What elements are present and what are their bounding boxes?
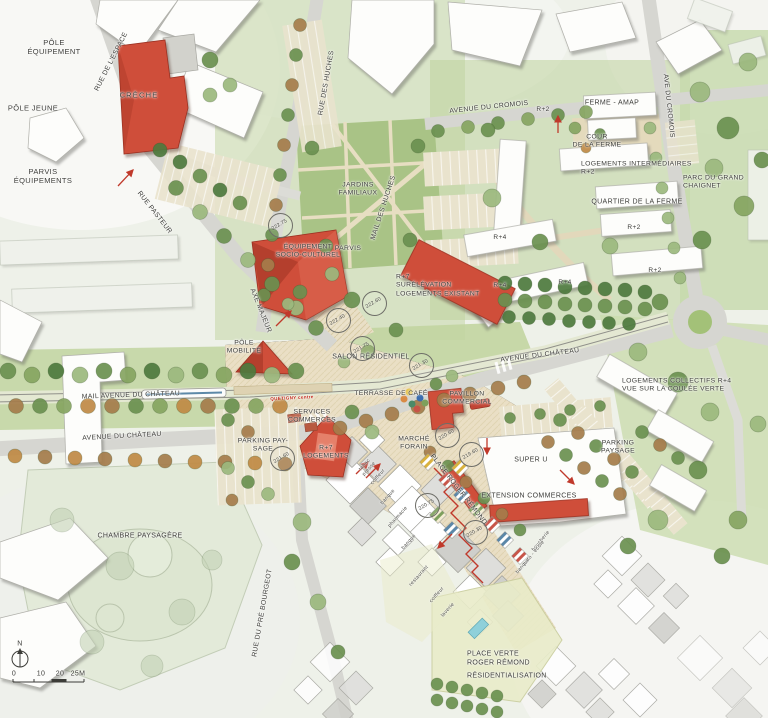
label-ferme-amap: FERME - AMAP bbox=[585, 100, 639, 109]
compass-north: N bbox=[17, 641, 22, 650]
label-tram-stop: QUETIGNY centre bbox=[270, 394, 314, 402]
street-mail-avenue-du-chateau: MAIL AVENUE DU CHÂTEAU bbox=[82, 390, 181, 402]
street-ave-du-cromois: AVE DU CROMOIS bbox=[661, 74, 676, 139]
label-pole-jeune: PÔLE JEUNE bbox=[8, 103, 58, 112]
label-parking-paysage-e: PARKING PAYSAGE bbox=[601, 440, 635, 457]
street-avenue-du-cromois: AVENUE DU CROMOIS bbox=[449, 100, 529, 117]
elevation-marker: 222.75 bbox=[268, 213, 293, 238]
shop-banque-1: banque bbox=[379, 488, 396, 506]
shop-banque-2: banque bbox=[400, 533, 417, 551]
label-place-verte: PLACE VERTE ROGER RÉMOND bbox=[467, 650, 530, 667]
elevation-marker: 220.60 bbox=[435, 423, 460, 448]
shop-laverie: laverie bbox=[440, 602, 456, 619]
label-layer: PÔLE ÉQUIPEMENTPÔLE JEUNEPARVIS ÉQUIPEME… bbox=[0, 0, 768, 718]
elevation-marker: 220.30 bbox=[463, 520, 488, 545]
label-extension-commerces: EXTENSION COMMERCES bbox=[481, 493, 576, 502]
label-services-commerces: SERVICES COMMERCES bbox=[288, 409, 336, 426]
shop-restaurant: restaurant bbox=[408, 564, 430, 587]
label-surelevation: R+7 SURÉLÉVATION LOGEMENTS EXISTANT bbox=[396, 274, 480, 299]
label-parvis: PARVIS bbox=[335, 245, 361, 253]
label-super-u: SUPER U bbox=[514, 457, 548, 466]
scale-tick-0: 0 bbox=[12, 671, 16, 680]
label-jardins-familiaux: JARDINS FAMILIAUX bbox=[339, 182, 378, 199]
shop-tabac-presse: tabac presse bbox=[357, 457, 378, 478]
label-pole-equipement: PÔLE ÉQUIPEMENT bbox=[27, 38, 80, 56]
street-rue-de-l-espace: RUE DE L'ESPACE bbox=[94, 31, 131, 93]
scale-tick-20: 20 bbox=[56, 671, 65, 680]
street-avenue-du-chateau-e: AVENUE DU CHÂTEAU bbox=[500, 347, 580, 365]
elevation-marker: 221.60 bbox=[270, 446, 295, 471]
elevation-marker: 220.75 bbox=[415, 493, 440, 518]
label-r2-a: R+2 bbox=[536, 106, 549, 114]
label-parc-du-grand-chaignet: PARC DU GRAND CHAIGNET bbox=[683, 175, 744, 192]
label-logements-collectifs: LOGEMENTS COLLECTIFS R+4 VUE SUR LA COUL… bbox=[622, 378, 731, 395]
shop-pharmacie: pharmacie bbox=[387, 505, 409, 529]
street-rue-pasteur: RUE PASTEUR bbox=[135, 190, 173, 236]
label-r2-c: R+2 bbox=[648, 267, 661, 275]
label-cour-de-la-ferme: COUR DE LA FERME bbox=[573, 134, 622, 151]
scale-tick-10: 10 bbox=[37, 671, 46, 680]
label-chambre-paysagere: CHAMBRE PAYSAGÈRE bbox=[97, 533, 182, 542]
label-residentialisation: RÉSIDENTIALISATION bbox=[467, 673, 547, 682]
elevation-marker: 222.60 bbox=[362, 291, 387, 316]
label-r4-b: R+4 bbox=[493, 282, 506, 290]
label-parvis-equipements: PARVIS ÉQUIPEMENTS bbox=[14, 167, 72, 185]
label-quartier-de-la-ferme: QUARTIER DE LA FERME bbox=[591, 199, 682, 208]
elevation-marker: 219.60 bbox=[459, 442, 484, 467]
label-marche-forain: MARCHÉ FORAIN bbox=[398, 436, 430, 453]
label-r2-b: R+2 bbox=[627, 224, 640, 232]
label-creche: CRÈCHE bbox=[120, 90, 159, 99]
label-terrasse-de-cafe: TERRASSE DE CAFÉ bbox=[354, 390, 428, 398]
label-equipement-socio-culturel: ÉQUIPEMENT SOCIO-CULTUREL bbox=[276, 244, 340, 261]
street-avenue-du-chateau-w: AVENUE DU CHÂTEAU bbox=[82, 431, 162, 443]
label-logements-intermediaires: LOGEMENTS INTERMÉDIAIRES R+2 bbox=[581, 161, 692, 178]
shop-banque-3: banque bbox=[515, 557, 532, 575]
label-pavillon-commercial: PAVILLON COMMERCIAL bbox=[442, 391, 492, 408]
scale-tick-25m: 25M bbox=[71, 671, 86, 680]
label-r7-logements: R+7 LOGEMENTS bbox=[303, 445, 349, 462]
street-rue-des-huches: RUE DES HUCHES bbox=[317, 50, 337, 116]
shop-coiffeur-2: coiffeur bbox=[428, 586, 445, 604]
street-axe-majeur: AXE MAJEUR bbox=[247, 288, 272, 335]
elevation-marker: 221.30 bbox=[409, 353, 434, 378]
elevation-marker: 221.75 bbox=[350, 336, 375, 361]
label-r4-c: R+4 bbox=[558, 279, 571, 287]
elevation-marker: 222.40 bbox=[326, 308, 351, 333]
label-r4-a: R+4 bbox=[493, 234, 506, 242]
street-rue-du-pre-bourgeot: RUE DU PRÉ BOURGEOT bbox=[251, 568, 275, 657]
masterplan-canvas: PÔLE ÉQUIPEMENTPÔLE JEUNEPARVIS ÉQUIPEME… bbox=[0, 0, 768, 718]
label-pole-mobilite: PÔLE MOBILITÉ bbox=[227, 340, 262, 357]
